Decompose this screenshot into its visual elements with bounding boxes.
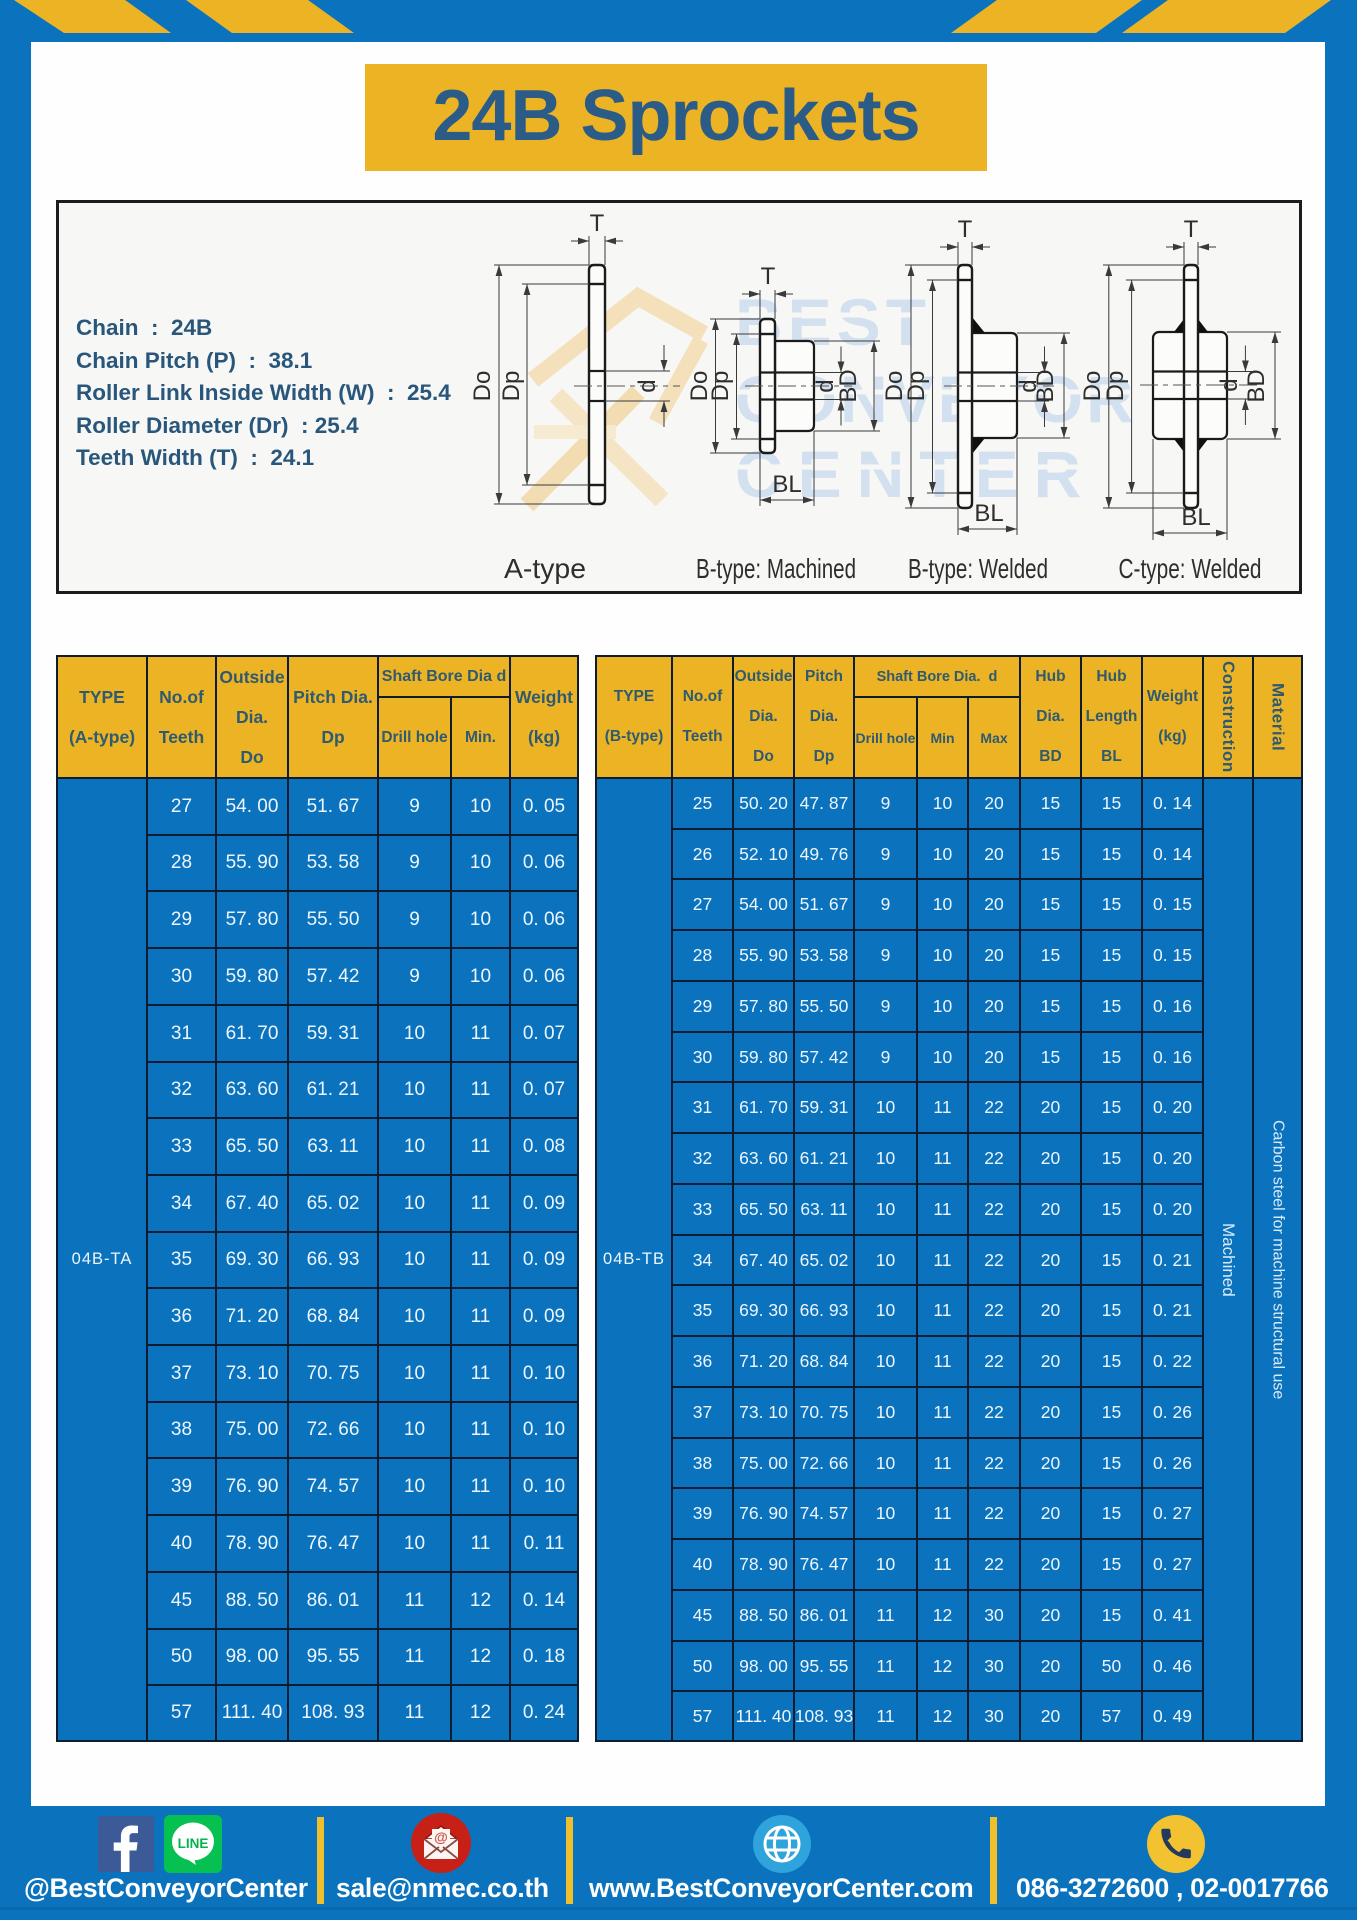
svg-text:T: T: [1184, 216, 1199, 243]
svg-text:B-type: Machined: B-type: Machined: [696, 553, 856, 584]
svg-text:Dp: Dp: [1102, 371, 1129, 402]
svg-text:Dp: Dp: [498, 371, 525, 402]
svg-text:BL: BL: [974, 500, 1003, 527]
svg-text:T: T: [590, 210, 605, 237]
svg-text:Dp: Dp: [903, 371, 930, 402]
svg-text:B-type: Welded: B-type: Welded: [908, 553, 1048, 584]
svg-text:T: T: [958, 216, 973, 243]
svg-text:BD: BD: [835, 369, 862, 402]
svg-text:d: d: [634, 379, 661, 392]
svg-text:BL: BL: [1181, 504, 1210, 531]
svg-text:BL: BL: [772, 471, 801, 498]
svg-text:Do: Do: [469, 371, 496, 402]
svg-text:BD: BD: [1032, 369, 1059, 402]
svg-text:@: @: [434, 1829, 448, 1845]
svg-text:Dp: Dp: [707, 371, 734, 402]
svg-text:BD: BD: [1243, 369, 1270, 402]
svg-text:LINE: LINE: [178, 1836, 209, 1851]
svg-text:T: T: [761, 263, 776, 290]
svg-text:A-type: A-type: [504, 553, 586, 584]
svg-text:d: d: [1216, 378, 1243, 391]
svg-text:C-type: Welded: C-type: Welded: [1119, 553, 1262, 584]
